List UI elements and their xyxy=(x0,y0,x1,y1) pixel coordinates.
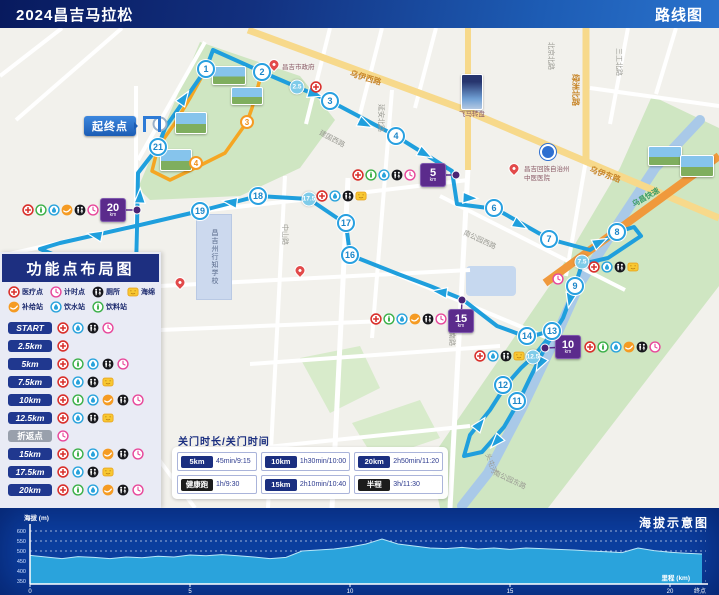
legend-row: 10km xyxy=(8,391,159,409)
toilet-icon xyxy=(117,448,129,460)
toilet-icon xyxy=(87,376,99,388)
supply-icon xyxy=(102,394,114,406)
x-tick-label: 20 xyxy=(667,589,674,595)
water-icon xyxy=(396,313,408,325)
legend-row-icons xyxy=(57,376,114,388)
km-box-20: 20km xyxy=(100,198,126,222)
sponge-icon xyxy=(355,190,367,202)
km-marker-2.5: 2.5 xyxy=(290,80,305,95)
km-box-number: 15 xyxy=(455,314,467,324)
legend-row-label: 12.5km xyxy=(8,412,52,424)
water-icon xyxy=(50,301,62,313)
clock-icon xyxy=(57,430,69,442)
water-icon xyxy=(72,322,84,334)
medical-icon xyxy=(310,81,322,93)
map-photo-thumbnail xyxy=(175,112,207,134)
toilet-icon xyxy=(614,261,626,273)
poi-pin xyxy=(506,161,522,177)
map-photo-thumbnail xyxy=(212,66,246,85)
clock-icon xyxy=(132,448,144,460)
medical-icon xyxy=(57,484,69,496)
water-icon xyxy=(72,376,84,388)
toilet-icon xyxy=(102,358,114,370)
legend-row-label: START xyxy=(8,322,52,334)
medical-icon xyxy=(57,340,69,352)
road-label: 三工北路 xyxy=(614,48,624,76)
sponge-icon xyxy=(102,466,114,478)
km-marker-7.5: 7.5 xyxy=(575,255,590,270)
legend-row: 2.5km xyxy=(8,337,159,355)
cutoff-distance-chip: 5km xyxy=(181,456,213,468)
km-box-number: 20 xyxy=(107,203,119,213)
legend-row-label: 5km xyxy=(8,358,52,370)
cutoff-time-value: 2h10min/10:40 xyxy=(300,481,346,488)
sponge-icon xyxy=(102,376,114,388)
poi-label: 昌吉回族自治州 xyxy=(524,166,570,173)
poi-pin xyxy=(172,275,188,291)
water-icon xyxy=(87,484,99,496)
toilet-icon xyxy=(500,350,512,362)
poi-school-block: 昌吉州行知学校 xyxy=(196,214,232,300)
poi-pin xyxy=(292,263,308,279)
road-label: 建国西路 xyxy=(317,128,346,150)
medical-icon xyxy=(474,350,486,362)
elevation-area xyxy=(30,539,702,584)
medical-icon xyxy=(57,376,69,388)
legend-row-icons xyxy=(57,322,114,334)
legend-key-item: 饮料站 xyxy=(92,301,127,313)
road-label: 延安北路 xyxy=(376,104,386,132)
map-icon-cluster xyxy=(588,261,639,273)
sponge-icon xyxy=(102,412,114,424)
legend-key-item: 计时点 xyxy=(50,286,85,298)
clock-icon xyxy=(50,286,62,298)
map-photo-thumbnail xyxy=(461,74,483,110)
km-marker-1: 1 xyxy=(197,60,215,78)
toilet-icon xyxy=(342,190,354,202)
start-finish-callout: 起终点 xyxy=(84,116,136,136)
km-marker-21: 21 xyxy=(149,138,167,156)
legend-row: 7.5km xyxy=(8,373,159,391)
water-icon xyxy=(487,350,499,362)
road-label: 绿洲北路 xyxy=(570,74,581,106)
legend-key-label: 饮料站 xyxy=(106,302,127,312)
clock-icon xyxy=(435,313,447,325)
km-marker-12: 12 xyxy=(494,376,512,394)
map-icon-cluster xyxy=(352,169,416,181)
cutoff-table: 5km45min/9:1510km1h30min/10:0020km2h50mi… xyxy=(172,447,448,499)
map-icon-cluster xyxy=(310,81,322,93)
water-icon xyxy=(610,341,622,353)
timing-dot xyxy=(458,296,467,305)
end-label: 终点 xyxy=(694,587,706,595)
toilet-icon xyxy=(74,204,86,216)
drink-icon xyxy=(92,301,104,313)
legend-row: 5km xyxy=(8,355,159,373)
km-marker-16: 16 xyxy=(341,246,359,264)
legend-row: 折返点 xyxy=(8,427,159,445)
road-label: 乌伊东路 xyxy=(588,164,622,185)
clock-icon xyxy=(404,169,416,181)
water-icon xyxy=(329,190,341,202)
medical-icon xyxy=(588,261,600,273)
km-box-unit: km xyxy=(565,350,572,355)
legend-key-line1: 医疗点计时点厕所海绵 xyxy=(8,286,157,298)
poi-label: 昌吉市政府 xyxy=(282,64,315,71)
km-box-15: 15km xyxy=(448,309,474,333)
cutoff-time-value: 3h/11:30 xyxy=(393,481,420,488)
x-tick-label: 0 xyxy=(28,589,32,595)
clock-icon xyxy=(132,394,144,406)
map-icon-cluster xyxy=(370,313,447,325)
km-box-5: 5km xyxy=(420,163,446,187)
water-icon xyxy=(87,358,99,370)
timing-dot xyxy=(541,344,550,353)
km-marker-8: 8 xyxy=(608,223,626,241)
legend-key-line2: 补给站饮水站饮料站 xyxy=(8,301,157,313)
km-marker-14: 14 xyxy=(518,327,536,345)
cutoff-cell: 10km1h30min/10:00 xyxy=(261,452,350,471)
km-marker-13: 13 xyxy=(543,322,561,340)
timing-dot xyxy=(133,206,142,215)
km-box-unit: km xyxy=(458,324,465,329)
km-marker-6: 6 xyxy=(485,199,503,217)
legend-key-item: 饮水站 xyxy=(50,301,85,313)
water-icon xyxy=(87,394,99,406)
legend-row: 12.5km xyxy=(8,409,159,427)
legend-key-label: 计时点 xyxy=(64,287,85,297)
map-icon-cluster xyxy=(474,350,525,362)
km-marker-17.5: 17.5 xyxy=(302,192,317,207)
water-icon xyxy=(601,261,613,273)
sponge-icon xyxy=(627,261,639,273)
clock-icon xyxy=(132,484,144,496)
map-icon-cluster xyxy=(22,204,99,216)
legend-row-label: 20km xyxy=(8,484,52,496)
supply-icon xyxy=(623,341,635,353)
medical-icon xyxy=(57,412,69,424)
legend-row-icons xyxy=(57,340,69,352)
km-box-number: 10 xyxy=(562,340,574,350)
km-marker-18: 18 xyxy=(249,187,267,205)
medical-icon xyxy=(352,169,364,181)
road-label: 南公园西路 xyxy=(462,228,498,252)
legend-row-label: 10km xyxy=(8,394,52,406)
km-marker-17: 17 xyxy=(337,214,355,232)
y-tick-label: 400 xyxy=(17,569,26,575)
km-marker-4: 4 xyxy=(387,127,405,145)
cutoff-distance-chip: 10km xyxy=(265,456,297,468)
km-box-unit: km xyxy=(110,213,117,218)
legend-row-icons xyxy=(57,484,144,496)
toilet-icon xyxy=(422,313,434,325)
legend-row-label: 折返点 xyxy=(8,430,52,442)
cutoff-time-value: 45min/9:15 xyxy=(216,458,251,465)
drink-icon xyxy=(35,204,47,216)
drink-icon xyxy=(597,341,609,353)
clock-icon xyxy=(87,204,99,216)
cutoff-cell: 健康跑1h/9:30 xyxy=(177,475,257,494)
drink-icon xyxy=(72,448,84,460)
cutoff-distance-chip: 半程 xyxy=(358,479,390,491)
legend-key-label: 海绵 xyxy=(141,287,155,297)
x-tick-label: 5 xyxy=(188,589,192,595)
page-subtitle: 路线图 xyxy=(655,4,703,25)
toilet-icon xyxy=(636,341,648,353)
elevation-section: 海拔示意图 60055050045040035005101520终点海拔 (m)… xyxy=(0,508,719,595)
roundabout-icon xyxy=(540,144,556,160)
km-marker-9: 9 xyxy=(566,277,584,295)
road-label: 头屯河 xyxy=(483,452,500,475)
x-axis-title: 里程 (km) xyxy=(661,573,690,582)
medical-icon xyxy=(370,313,382,325)
legend-row-label: 17.5km xyxy=(8,466,52,478)
water-icon xyxy=(48,204,60,216)
water-icon xyxy=(72,466,84,478)
km-marker-2: 2 xyxy=(253,63,271,81)
cutoff-time-value: 1h30min/10:00 xyxy=(300,458,346,465)
toilet-icon xyxy=(87,412,99,424)
legend-rows: START2.5km5km7.5km10km12.5km折返点15km17.5k… xyxy=(2,318,159,499)
legend-row-icons xyxy=(57,430,69,442)
km-marker-3: 3 xyxy=(240,115,254,129)
legend-key-item: 海绵 xyxy=(127,286,155,298)
legend-row-label: 2.5km xyxy=(8,340,52,352)
legend-row-icons xyxy=(57,448,144,460)
map-photo-thumbnail xyxy=(231,87,263,105)
drink-icon xyxy=(72,394,84,406)
medical-icon xyxy=(8,286,20,298)
y-tick-label: 550 xyxy=(17,539,26,545)
km-marker-4: 4 xyxy=(189,156,203,170)
legend-key-item: 医疗点 xyxy=(8,286,43,298)
legend-row: 15km xyxy=(8,445,159,463)
legend-key-label: 医疗点 xyxy=(22,287,43,297)
toilet-icon xyxy=(87,466,99,478)
poi-label: 中医医院 xyxy=(524,175,550,182)
legend-key: 医疗点计时点厕所海绵 补给站饮水站饮料站 xyxy=(2,282,159,318)
water-icon xyxy=(87,448,99,460)
supply-icon xyxy=(102,448,114,460)
x-tick-label: 15 xyxy=(507,589,514,595)
legend-row-icons xyxy=(57,358,129,370)
legend-key-label: 饮水站 xyxy=(64,302,85,312)
sponge-icon xyxy=(513,350,525,362)
cutoff-time-value: 1h/9:30 xyxy=(216,481,239,488)
drink-icon xyxy=(72,358,84,370)
y-tick-label: 600 xyxy=(17,529,26,535)
legend-key-label: 补给站 xyxy=(22,302,43,312)
legend-key-item: 补给站 xyxy=(8,301,43,313)
toilet-icon xyxy=(117,394,129,406)
page-title: 2024昌吉马拉松 xyxy=(16,4,133,25)
drink-icon xyxy=(383,313,395,325)
map-icon-cluster xyxy=(584,341,661,353)
poi-label: 飞马转盘 xyxy=(459,111,485,118)
elevation-chart: 60055050045040035005101520终点海拔 (m)里程 (km… xyxy=(0,508,719,595)
supply-icon xyxy=(409,313,421,325)
cutoff-table-title: 关门时长/关门时间 xyxy=(178,433,270,448)
road-label: 乌伊西路 xyxy=(349,68,383,88)
km-box-number: 5 xyxy=(430,168,436,178)
legend-row-label: 7.5km xyxy=(8,376,52,388)
cutoff-cell: 15km2h10min/10:40 xyxy=(261,475,350,494)
y-tick-label: 450 xyxy=(17,559,26,565)
water-icon xyxy=(378,169,390,181)
water-icon xyxy=(72,412,84,424)
legend-key-item: 厕所 xyxy=(92,286,120,298)
clock-icon xyxy=(117,358,129,370)
function-points-panel: 功能点布局图 医疗点计时点厕所海绵 补给站饮水站饮料站 START2.5km5k… xyxy=(0,252,161,508)
map-photo-thumbnail xyxy=(680,155,714,177)
x-tick-label: 10 xyxy=(347,589,354,595)
legend-row-icons xyxy=(57,412,114,424)
km-marker-19: 19 xyxy=(191,202,209,220)
cutoff-distance-chip: 健康跑 xyxy=(181,479,213,491)
medical-icon xyxy=(57,322,69,334)
toilet-icon xyxy=(391,169,403,181)
map-photo-thumbnail xyxy=(648,146,682,166)
road-label: 乌昌快速 xyxy=(630,185,661,210)
supply-icon xyxy=(8,301,20,313)
legend-row-label: 15km xyxy=(8,448,52,460)
km-marker-11: 11 xyxy=(508,392,526,410)
legend-row-icons xyxy=(57,394,144,406)
medical-icon xyxy=(316,190,328,202)
supply-icon xyxy=(102,484,114,496)
drink-icon xyxy=(72,484,84,496)
medical-icon xyxy=(57,358,69,370)
cutoff-distance-chip: 20km xyxy=(358,456,390,468)
cutoff-cell: 20km2h50min/11:20 xyxy=(354,452,443,471)
cutoff-cell: 5km45min/9:15 xyxy=(177,452,257,471)
map-icon-cluster xyxy=(552,273,564,285)
y-axis-title: 海拔 (m) xyxy=(24,513,49,522)
legend-row: 20km xyxy=(8,481,159,499)
poster-page: 2024昌吉马拉松 路线图 xyxy=(0,0,719,595)
road-label: 北京北路 xyxy=(546,42,556,70)
road-label: 中山路 xyxy=(280,224,290,245)
medical-icon xyxy=(57,466,69,478)
medical-icon xyxy=(584,341,596,353)
cutoff-cell: 半程3h/11:30 xyxy=(354,475,443,494)
clock-icon xyxy=(102,322,114,334)
toilet-icon xyxy=(117,484,129,496)
km-marker-12.5: 12.5 xyxy=(526,350,541,365)
km-marker-7: 7 xyxy=(540,230,558,248)
supply-icon xyxy=(61,204,73,216)
header-bar: 2024昌吉马拉松 路线图 xyxy=(0,0,719,28)
medical-icon xyxy=(57,394,69,406)
cutoff-time-value: 2h50min/11:20 xyxy=(393,458,439,465)
toilet-icon xyxy=(87,322,99,334)
km-box-10: 10km xyxy=(555,335,581,359)
medical-icon xyxy=(57,448,69,460)
legend-row-icons xyxy=(57,466,114,478)
legend-row: 17.5km xyxy=(8,463,159,481)
clock-icon xyxy=(649,341,661,353)
clock-icon xyxy=(552,273,564,285)
map-icon-cluster xyxy=(316,190,367,202)
legend-row: START xyxy=(8,319,159,337)
medical-icon xyxy=(22,204,34,216)
legend-key-label: 厕所 xyxy=(106,287,120,297)
sponge-icon xyxy=(127,286,139,298)
km-marker-3: 3 xyxy=(321,92,339,110)
panel-title: 功能点布局图 xyxy=(2,254,159,282)
drink-icon xyxy=(365,169,377,181)
start-gate-icon xyxy=(143,116,161,132)
timing-dot xyxy=(452,171,461,180)
km-box-unit: km xyxy=(430,178,437,183)
y-tick-label: 350 xyxy=(17,579,26,585)
y-tick-label: 500 xyxy=(17,549,26,555)
toilet-icon xyxy=(92,286,104,298)
cutoff-distance-chip: 15km xyxy=(265,479,297,491)
